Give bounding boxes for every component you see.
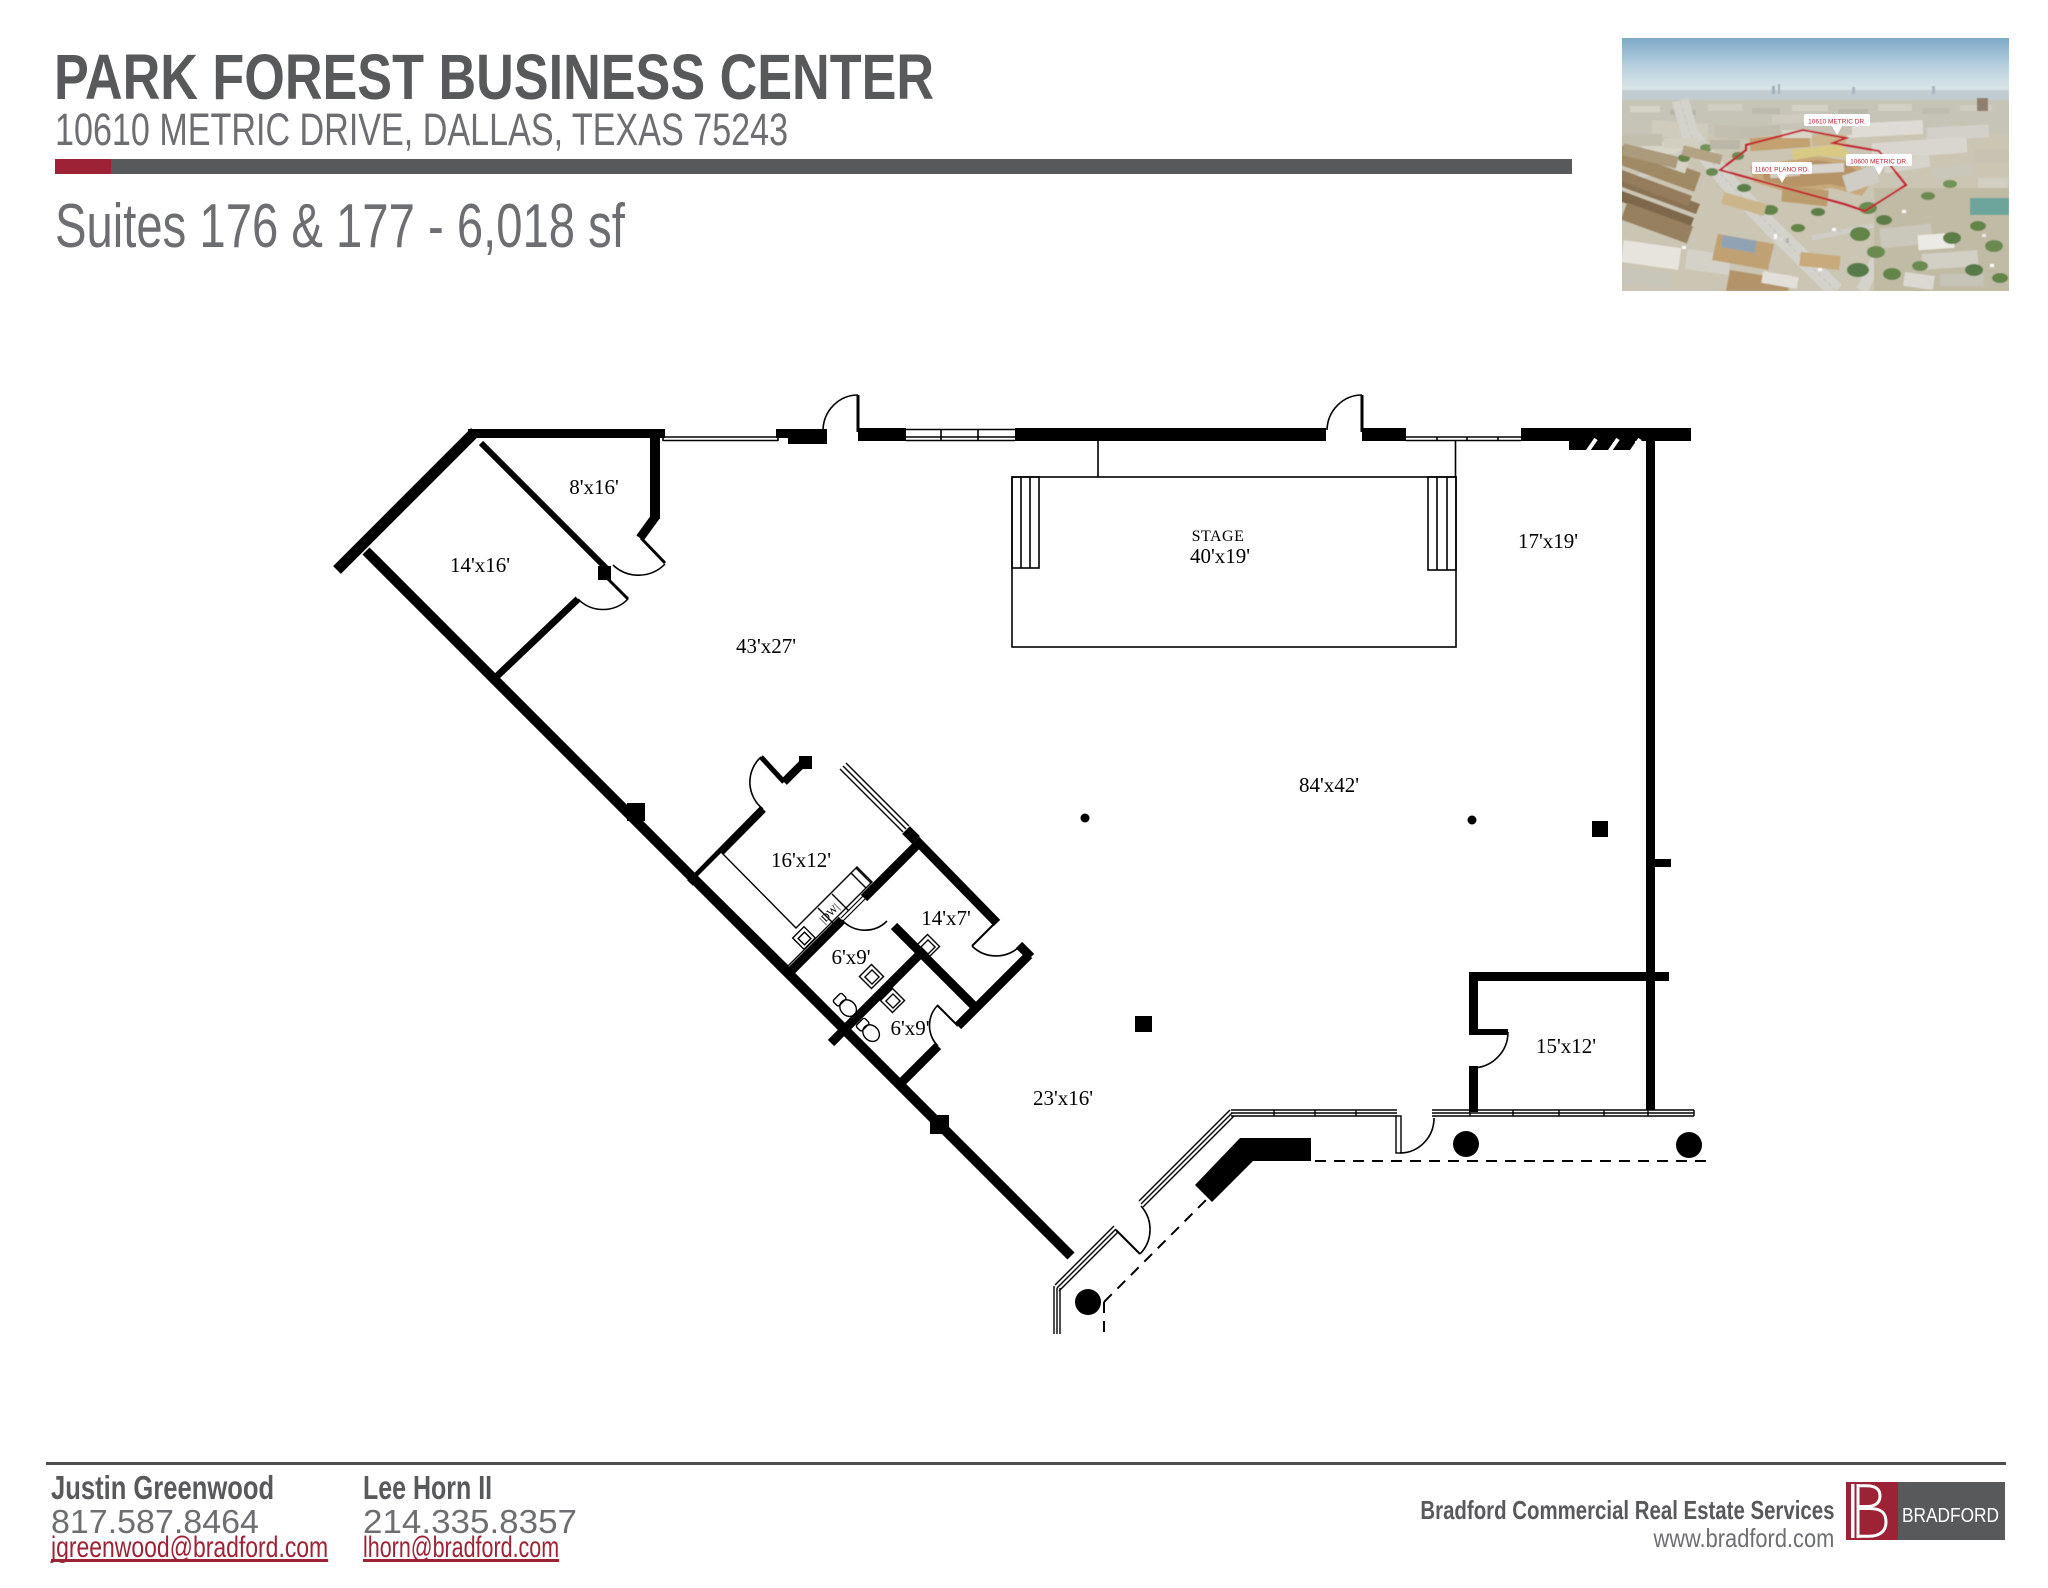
svg-text:STAGE: STAGE: [1192, 528, 1245, 545]
svg-text:84'x42': 84'x42': [1299, 773, 1359, 797]
svg-text:23'x16': 23'x16': [1033, 1086, 1093, 1110]
svg-text:14'x16': 14'x16': [450, 553, 510, 577]
svg-text:6'x9': 6'x9': [831, 945, 870, 969]
svg-text:40'x19': 40'x19': [1190, 544, 1250, 568]
svg-text:15'x12': 15'x12': [1536, 1034, 1596, 1058]
svg-text:BRADFORD: BRADFORD: [1902, 1504, 1999, 1527]
svg-text:17'x19': 17'x19': [1518, 529, 1578, 553]
svg-text:14'x7': 14'x7': [921, 906, 971, 930]
svg-text:6'x9': 6'x9': [890, 1016, 929, 1040]
svg-text:16'x12': 16'x12': [771, 848, 831, 872]
svg-text:8'x16': 8'x16': [569, 475, 619, 499]
svg-text:43'x27': 43'x27': [736, 634, 796, 658]
